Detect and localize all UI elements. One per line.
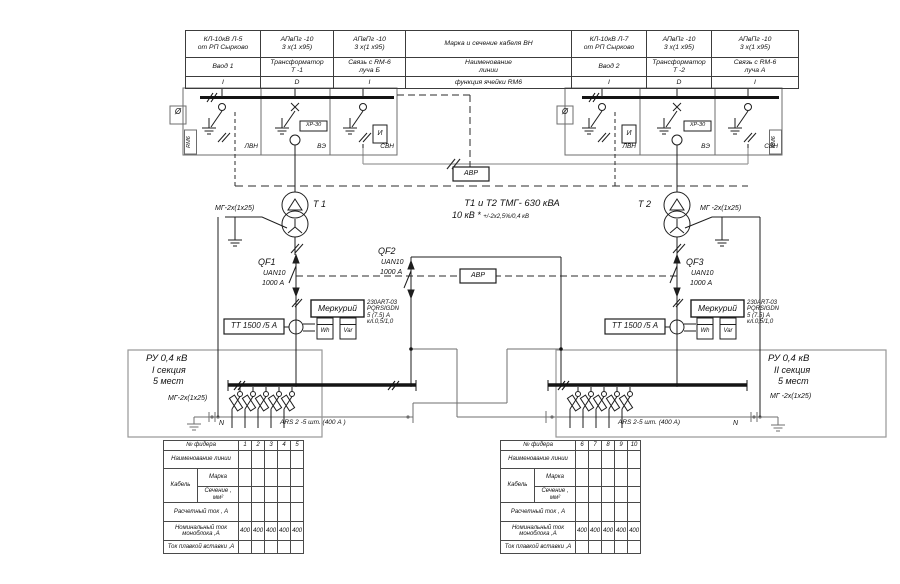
rm6-right-fuse-box-label: ХР-30 bbox=[684, 123, 711, 129]
hv-cell: Связь с RM-6луча А bbox=[712, 58, 799, 77]
ft-label: Номинальный ток моноблока ,А bbox=[501, 522, 576, 541]
switchboard-right-title: РУ 0,4 кВ bbox=[768, 354, 809, 364]
hv-cell: АПвПг -103 х(1 х95) bbox=[647, 31, 712, 58]
switchboard-right-places: 5 мест bbox=[778, 377, 809, 386]
qf3-type-label: UAN10 bbox=[691, 270, 714, 277]
ft-val: 400 bbox=[576, 522, 589, 541]
ct-left-label: ТТ 1500 /5 А bbox=[224, 322, 284, 330]
spec-line: PQRSIGDN bbox=[367, 306, 399, 312]
hv-cell: ТрансформаторТ -2 bbox=[647, 58, 712, 77]
rm6-busbars bbox=[200, 93, 779, 102]
ft-val: 400 bbox=[252, 522, 265, 541]
ft-val: 400 bbox=[589, 522, 602, 541]
ft-val: 400 bbox=[265, 522, 278, 541]
ft-val: 400 bbox=[278, 522, 291, 541]
wh-meter-right-label: Wh bbox=[697, 328, 713, 334]
qf1-label: QF1 bbox=[258, 258, 276, 267]
ft-label: Наименование линии bbox=[164, 451, 239, 469]
ft-label: Марка bbox=[535, 469, 576, 487]
transformer-title: Т1 и Т2 ТМГ- 630 кВА bbox=[432, 199, 592, 209]
hv-cell: АПвПг -103 х(1 х95) bbox=[334, 31, 406, 58]
hv-header-table: КЛ-10кВ Л-5от РП Сырково АПвПг -103 х(1 … bbox=[185, 30, 799, 89]
hv-cell: КЛ-10кВ Л-7от РП Сырково bbox=[572, 31, 647, 58]
ft-label: Расчетный ток , А bbox=[164, 503, 239, 522]
avr-box-top-label: АВР bbox=[453, 170, 489, 177]
rm6-right-i-box-label: И bbox=[622, 130, 636, 137]
rm6-right-gauge-icon: Ø bbox=[557, 108, 573, 116]
ft-num: 2 bbox=[252, 441, 265, 451]
hv-cell: функция ячейки RM6 bbox=[406, 77, 572, 89]
neutral-right-label: N bbox=[733, 420, 738, 427]
feeder-table-left: № фидера 12345 Наименование линии Кабель… bbox=[163, 440, 304, 554]
t2-label: Т 2 bbox=[638, 200, 651, 209]
rm6-right-unit-label: RM6 bbox=[772, 136, 778, 148]
feeder-table-right: № фидера 678910 Наименование линии Кабел… bbox=[500, 440, 641, 554]
qf2-current-label: 1000 А bbox=[380, 269, 402, 276]
t1-ground-cable-label: МГ-2х(1х25) bbox=[215, 205, 254, 212]
spec-line: кл.0,5/1,0 bbox=[367, 319, 399, 325]
t1-label: Т 1 bbox=[313, 200, 326, 209]
switchboard-left-title: РУ 0,4 кВ bbox=[146, 354, 187, 364]
hv-cell: АПвПг -103 х(1 х95) bbox=[261, 31, 334, 58]
meter-left-label: Меркурий bbox=[311, 304, 364, 313]
ft-num: 10 bbox=[628, 441, 641, 451]
hv-cell: D bbox=[647, 77, 712, 89]
hv-cell: КЛ-10кВ Л-5от РП Сырково bbox=[186, 31, 261, 58]
ft-num: 6 bbox=[576, 441, 589, 451]
ft-num: 4 bbox=[278, 441, 291, 451]
ft-label: Марка bbox=[198, 469, 239, 487]
rm6-left-unit-label: RM6 bbox=[187, 136, 193, 148]
qf1-breaker bbox=[284, 255, 315, 385]
lv-busbars bbox=[228, 347, 747, 391]
qf2-type-label: UAN10 bbox=[381, 259, 404, 266]
ft-num: 8 bbox=[602, 441, 615, 451]
ft-label: Наименование линии bbox=[501, 451, 576, 469]
spec-line: PQRSIGDN bbox=[747, 306, 779, 312]
meter-left-spec: 230ART-03 PQRSIGDN 5 (7.5) А кл.0,5/1,0 bbox=[367, 300, 399, 325]
ft-label: № фидера bbox=[501, 441, 576, 451]
ft-num: 5 bbox=[291, 441, 304, 451]
hv-cell: АПвПг -103 х(1 х95) bbox=[712, 31, 799, 58]
ft-val: 400 bbox=[615, 522, 628, 541]
voltage-main: 10 кВ * bbox=[452, 210, 481, 220]
rm6-left-cell-svn-label: СВН bbox=[356, 144, 394, 151]
rm6-left-i-box-label: И bbox=[373, 130, 387, 137]
ft-num: 3 bbox=[265, 441, 278, 451]
ct-right-label: ТТ 1500 /5 А bbox=[605, 322, 665, 330]
rm6-left-cell-ve-label: ВЭ bbox=[305, 144, 326, 151]
ft-label: Расчетный ток , А bbox=[501, 503, 576, 522]
ft-label: № фидера bbox=[164, 441, 239, 451]
single-line-diagram: КЛ-10кВ Л-5от РП Сырково АПвПг -103 х(1 … bbox=[0, 0, 900, 584]
hv-cell: Марка и сечение кабеля ВН bbox=[406, 31, 572, 58]
switchboard-left-places: 5 мест bbox=[153, 377, 184, 386]
hv-cell: Наименованиелинии bbox=[406, 58, 572, 77]
neutral-left-label: N bbox=[219, 420, 224, 427]
hv-cell: D bbox=[261, 77, 334, 89]
qf2-label: QF2 bbox=[378, 247, 396, 256]
ft-num: 7 bbox=[589, 441, 602, 451]
wh-meter-left-label: Wh bbox=[317, 328, 333, 334]
ft-label: Номинальный ток моноблока ,А bbox=[164, 522, 239, 541]
switchboard-right-ground-cable: МГ -2х(1х25) bbox=[770, 393, 811, 400]
rm6-right-cell-lvn-label: ЛВН bbox=[610, 144, 636, 151]
var-meter-left-label: Var bbox=[340, 328, 356, 334]
fuse-group-right-label: ARS 2-5 шт. (400 А) bbox=[618, 420, 680, 427]
ft-label: Кабель bbox=[501, 469, 535, 503]
rm6-left-cell-lvn-label: ЛВН bbox=[232, 144, 258, 151]
rm6-right-cell-ve-label: ВЭ bbox=[689, 144, 710, 151]
neutral-network bbox=[187, 349, 785, 431]
hv-cell: Ввод 1 bbox=[186, 58, 261, 77]
transformer-voltage: 10 кВ * +/-2х2,5%/0,4 кВ bbox=[452, 211, 529, 220]
ft-label: Кабель bbox=[164, 469, 198, 503]
ft-label: Ток плавкой вставки ,А bbox=[501, 541, 576, 554]
qf3-label: QF3 bbox=[686, 258, 704, 267]
hv-cell: Ввод 2 bbox=[572, 58, 647, 77]
hv-cell: I bbox=[334, 77, 406, 89]
ft-val: 400 bbox=[628, 522, 641, 541]
hv-cell: ТрансформаторТ -1 bbox=[261, 58, 334, 77]
switchboard-left-ground-cable: МГ-2х(1х25) bbox=[168, 395, 207, 402]
var-meter-right-label: Var bbox=[720, 328, 736, 334]
switchboard-right-section: II секция bbox=[774, 366, 810, 375]
fuse-group-left-label: ARS 2 -5 шт. (400 А ) bbox=[280, 420, 346, 427]
rm6-left-gauge-icon: Ø bbox=[170, 108, 186, 116]
hv-cell: I bbox=[572, 77, 647, 89]
voltage-note: +/-2х2,5%/0,4 кВ bbox=[483, 214, 529, 220]
switchboard-left-section: I секция bbox=[152, 366, 186, 375]
ft-label: Сечение , мм² bbox=[198, 487, 239, 503]
ft-val: 400 bbox=[239, 522, 252, 541]
avr-box-lv-label: АВР bbox=[460, 272, 496, 279]
meter-right-label: Меркурий bbox=[691, 304, 744, 313]
ft-val: 400 bbox=[602, 522, 615, 541]
hv-cell: Связь с RM-6луча Б bbox=[334, 58, 406, 77]
qf3-current-label: 1000 А bbox=[690, 280, 712, 287]
ft-label: Ток плавкой вставки ,А bbox=[164, 541, 239, 554]
hv-cell: I bbox=[712, 77, 799, 89]
ft-num: 1 bbox=[239, 441, 252, 451]
t2-ground-cable-label: МГ -2х(1х25) bbox=[700, 205, 741, 212]
ft-label: Сечение , мм² bbox=[535, 487, 576, 503]
ft-num: 9 bbox=[615, 441, 628, 451]
hv-cell: I bbox=[186, 77, 261, 89]
qf1-type-label: UAN10 bbox=[263, 270, 286, 277]
meter-right-spec: 230ART-03 PQRSIGDN 5 (7.5) А кл.0,5/1,0 bbox=[747, 300, 779, 325]
rm6-left-fuse-box-label: ХР-30 bbox=[300, 123, 327, 129]
qf1-current-label: 1000 А bbox=[262, 280, 284, 287]
ft-val: 400 bbox=[291, 522, 304, 541]
spec-line: кл.0,5/1,0 bbox=[747, 319, 779, 325]
